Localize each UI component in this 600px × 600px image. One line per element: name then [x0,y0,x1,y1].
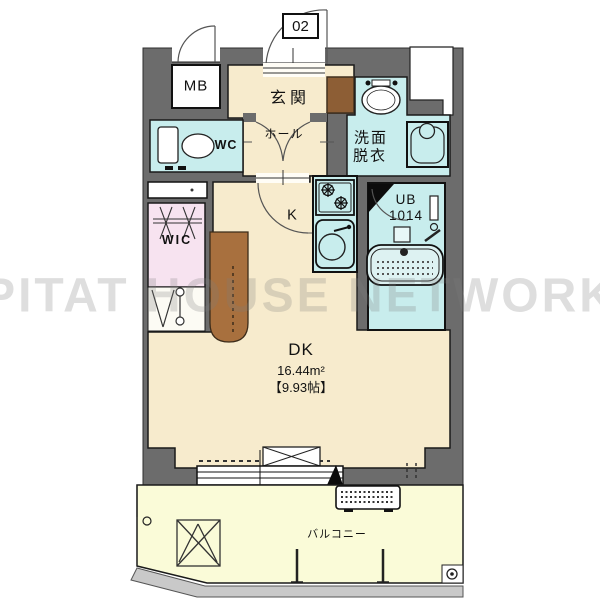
washing-machine-pan-icon [407,122,448,167]
unit-number-badge: 02 [282,13,319,39]
bath-stool [394,227,410,242]
label-wic: WIC [162,233,192,247]
gas-stove-icon [316,180,354,215]
balcony-left-marker [143,517,151,525]
watermark: PITAT HOUSE NETWORK [0,269,600,324]
storage-shelf [148,182,207,198]
label-dk: DK [269,339,333,362]
label-dk-block: DK 16.44m² 【9.93帖】 [269,339,333,397]
label-washroom-line1: 洗面 [354,129,388,146]
balcony [131,485,463,597]
label-dk-area-tatami: 【9.93帖】 [269,379,333,397]
label-washroom-line2: 脱衣 [353,147,387,164]
label-genkan: 玄関 [270,90,310,108]
label-dk-area-sqm: 16.44m² [269,362,333,380]
label-balcony: バルコニー [307,529,367,542]
kitchen-counter [313,176,357,272]
label-unit-bath-line2: 1014 [389,208,423,224]
ac-outdoor-unit-icon [336,486,400,512]
label-hall: ホール [264,128,303,142]
kitchen-sink-icon [316,220,354,268]
entry-step [327,77,354,113]
label-unit-bath-line1: UB [396,192,417,208]
washbasin-icon [362,80,400,114]
label-meter-box: MB [184,77,209,94]
floorplan-image: PITAT HOUSE NETWORK 02 MB 玄関 ホール WC 洗面 脱… [0,0,600,600]
label-wc: WC [215,138,238,152]
label-kitchen: K [287,208,297,225]
